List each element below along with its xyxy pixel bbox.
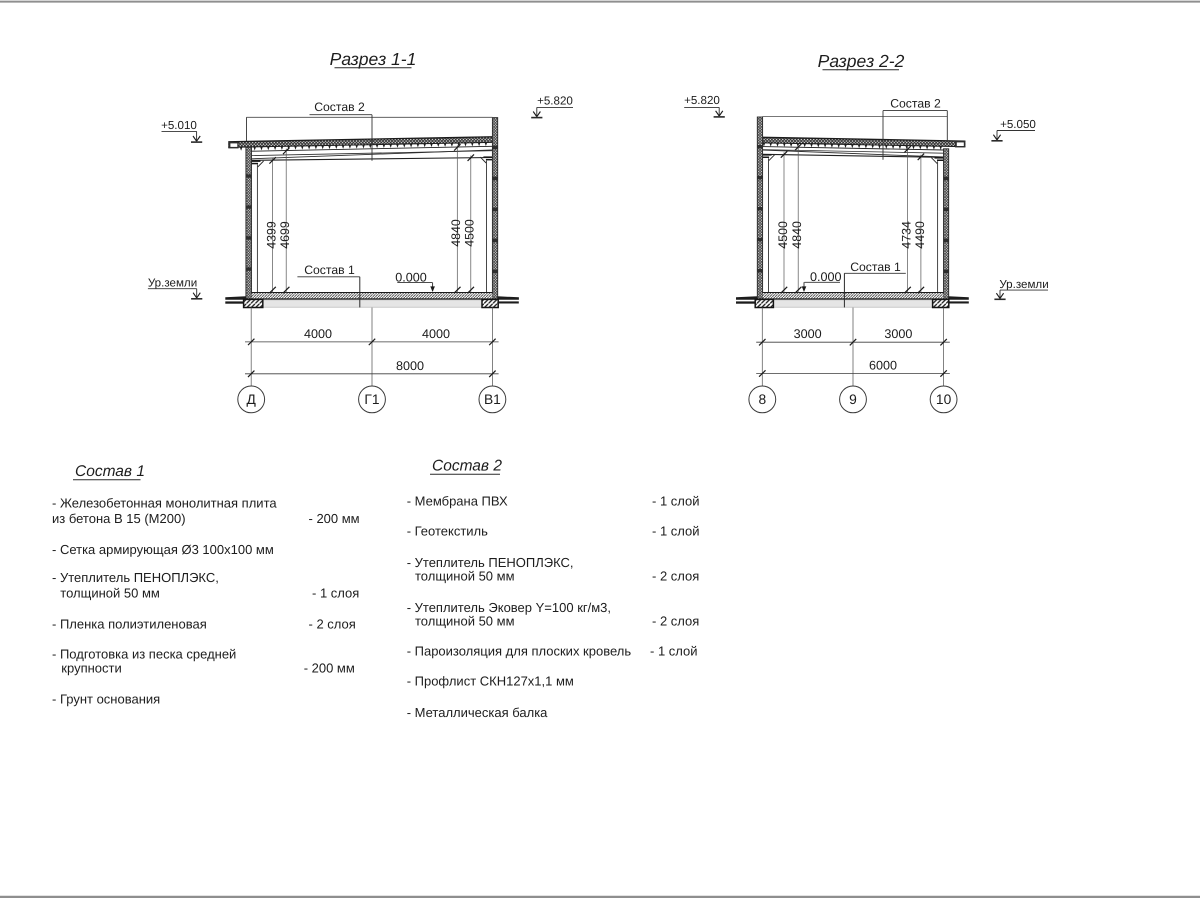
svg-text:4399: 4399 — [265, 221, 279, 249]
svg-text:10: 10 — [936, 392, 952, 407]
svg-text:- Утеплитель ПЕНОПЛЭКС,: - Утеплитель ПЕНОПЛЭКС, — [52, 570, 219, 585]
svg-text:+5.010: +5.010 — [161, 119, 197, 132]
svg-text:- 1 слоя: - 1 слоя — [312, 585, 359, 600]
svg-text:4699: 4699 — [278, 221, 292, 249]
svg-text:Ур.земли: Ур.земли — [148, 276, 197, 289]
svg-text:4490: 4490 — [913, 221, 927, 249]
svg-text:крупности: крупности — [61, 660, 121, 675]
svg-text:толщиной 50 мм: толщиной 50 мм — [415, 569, 515, 584]
svg-text:Состав 2: Состав 2 — [890, 97, 941, 111]
svg-text:3000: 3000 — [794, 327, 822, 341]
svg-text:- Грунт основания: - Грунт основания — [52, 692, 160, 707]
svg-text:4840: 4840 — [790, 221, 804, 249]
svg-text:4500: 4500 — [463, 219, 477, 247]
svg-text:8: 8 — [758, 392, 766, 407]
svg-text:4500: 4500 — [776, 221, 790, 249]
svg-text:3000: 3000 — [884, 327, 912, 341]
svg-text:Состав 2: Состав 2 — [314, 100, 365, 114]
svg-text:- Пленка полиэтиленовая: - Пленка полиэтиленовая — [52, 617, 207, 632]
svg-text:Г1: Г1 — [364, 392, 379, 407]
svg-text:Д: Д — [247, 392, 257, 407]
svg-text:- Мембрана ПВХ: - Мембрана ПВХ — [407, 494, 508, 509]
svg-text:Разрез 1-1: Разрез 1-1 — [330, 49, 417, 69]
svg-text:4840: 4840 — [449, 219, 463, 247]
svg-text:- 2 слоя: - 2 слоя — [309, 617, 356, 632]
svg-text:толщиной 50 мм: толщиной 50 мм — [60, 585, 160, 600]
svg-text:Состав 1: Состав 1 — [850, 260, 901, 274]
svg-text:4734: 4734 — [900, 221, 914, 249]
svg-text:- 200 мм: - 200 мм — [304, 660, 355, 675]
svg-text:8000: 8000 — [396, 359, 424, 373]
svg-text:Ур.земли: Ур.земли — [999, 278, 1048, 291]
svg-text:- 2 слоя: - 2 слоя — [652, 569, 699, 584]
svg-text:- 1 слой: - 1 слой — [652, 524, 700, 539]
svg-text:4000: 4000 — [422, 327, 450, 341]
svg-text:- 1 слой: - 1 слой — [652, 494, 700, 509]
svg-text:- Сетка армирующая Ø3 100х100: - Сетка армирующая Ø3 100х100 мм — [52, 542, 274, 557]
svg-text:Разрез 2-2: Разрез 2-2 — [818, 51, 905, 71]
svg-text:6000: 6000 — [869, 359, 897, 373]
svg-text:- 200 мм: - 200 мм — [309, 511, 360, 526]
svg-text:+5.820: +5.820 — [537, 94, 573, 107]
svg-text:Состав 2: Состав 2 — [432, 458, 502, 475]
svg-text:- Профлист СКН127х1,1 мм: - Профлист СКН127х1,1 мм — [407, 674, 574, 689]
svg-text:толщиной 50 мм: толщиной 50 мм — [415, 614, 515, 629]
svg-text:- 1 слой: - 1 слой — [650, 644, 698, 659]
svg-text:- Геотекстиль: - Геотекстиль — [407, 524, 488, 539]
svg-text:- Металлическая балка: - Металлическая балка — [407, 705, 548, 720]
svg-text:Состав 1: Состав 1 — [75, 463, 145, 480]
svg-text:+5.820: +5.820 — [684, 94, 720, 107]
svg-text:В1: В1 — [484, 392, 501, 407]
svg-text:9: 9 — [849, 392, 857, 407]
svg-text:Состав 1: Состав 1 — [304, 263, 355, 277]
svg-text:- Железобетонная монолитная п: - Железобетонная монолитная плита — [52, 496, 277, 511]
svg-text:- Пароизоляция для плоских кро: - Пароизоляция для плоских кровель — [407, 644, 632, 659]
svg-text:из бетона В 15 (М200): из бетона В 15 (М200) — [52, 511, 186, 526]
svg-text:- 2 слоя: - 2 слоя — [652, 614, 699, 629]
svg-text:+5.050: +5.050 — [1000, 118, 1036, 131]
svg-text:4000: 4000 — [304, 327, 332, 341]
